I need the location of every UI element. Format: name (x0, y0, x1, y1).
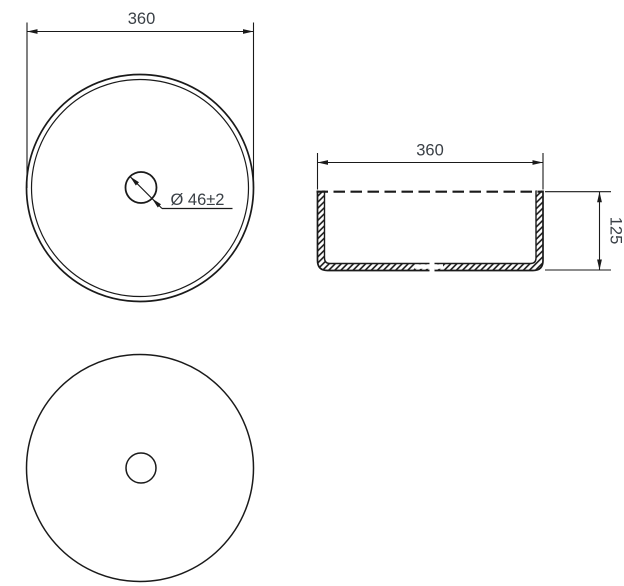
top-view: 360 Ø 46±2 (27, 10, 254, 302)
arrowhead-up-icon (597, 192, 602, 203)
arrowhead-right-icon (243, 29, 254, 34)
basin-section-outer-contour (318, 191, 544, 271)
side-view-height-label: 125 (607, 217, 624, 245)
basin-section-inner-contour (325, 191, 537, 264)
arrowhead-left-icon (27, 29, 38, 34)
technical-drawing-canvas: 360 Ø 46±2 360 (0, 0, 624, 586)
basin-technical-drawing: 360 Ø 46±2 360 (0, 0, 624, 586)
bottom-drain-hole-circle (126, 453, 156, 483)
side-section-view: 360 125 (317, 142, 624, 273)
basin-outer-edge-circle (27, 75, 254, 302)
arrowhead-left-icon (318, 160, 329, 165)
basin-section-hatch (318, 191, 544, 271)
top-view-width-label: 360 (128, 10, 156, 28)
drain-opening-gap (415, 264, 443, 268)
arrowhead-down-icon (597, 260, 602, 271)
drain-opening-break (430, 262, 435, 273)
bottom-view (27, 355, 254, 582)
basin-bottom-outline-circle (27, 355, 254, 582)
basin-inner-rim-circle (32, 80, 249, 297)
side-view-width-label: 360 (416, 142, 444, 160)
drain-diameter-label: Ø 46±2 (170, 191, 224, 209)
arrowhead-right-icon (533, 160, 544, 165)
